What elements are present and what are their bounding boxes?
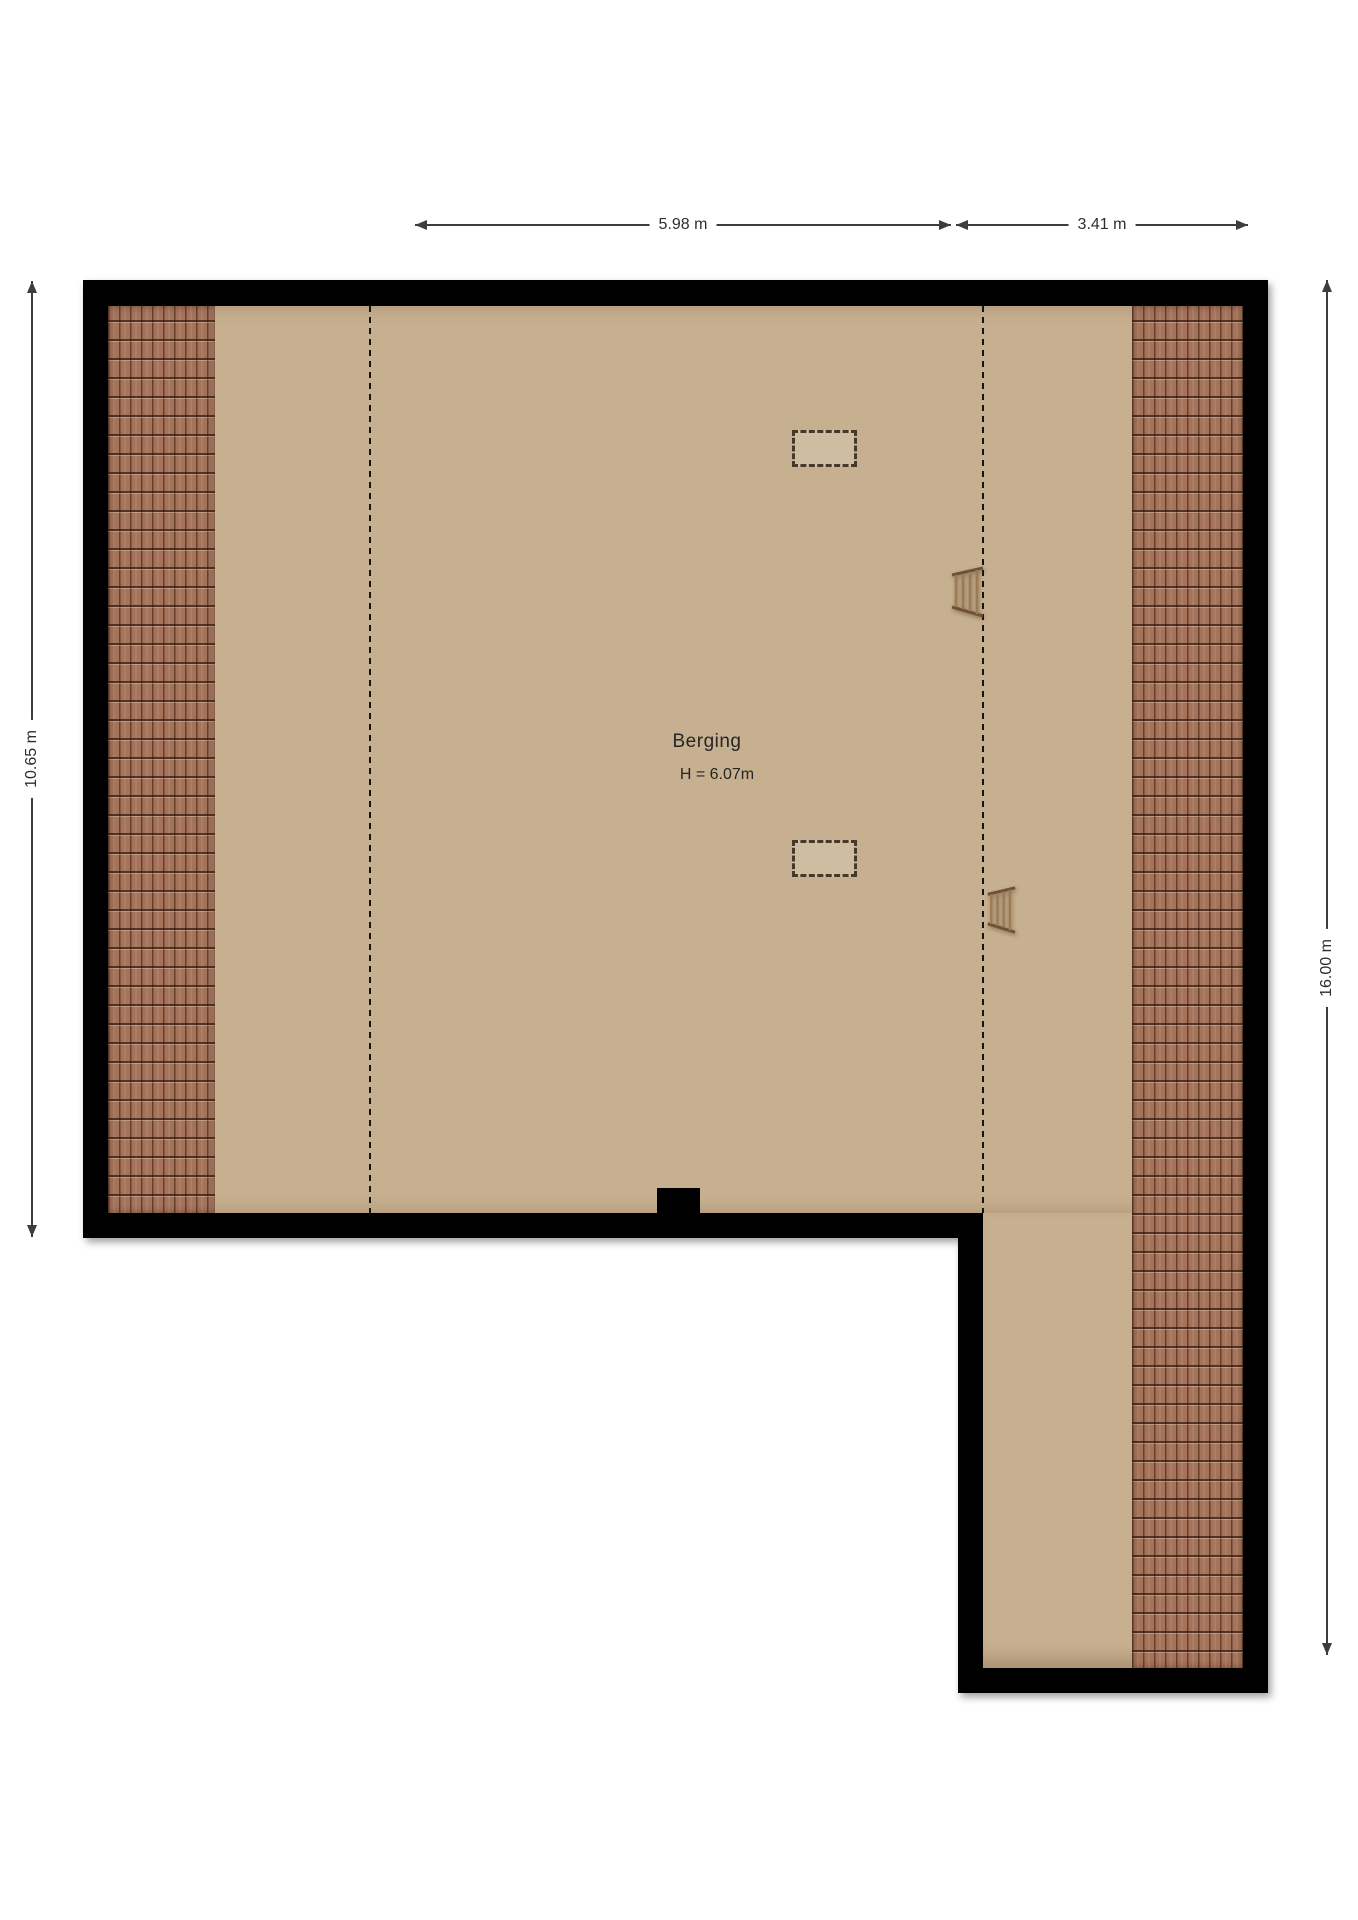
ladder-icon-2 <box>986 886 1016 934</box>
room-name-label: Berging <box>557 731 857 753</box>
floor-plan-page: 5.98 m 3.41 m 10.65 m 16.00 m <box>0 0 1358 1920</box>
door-stub <box>657 1188 700 1238</box>
skylight-dashed-rect-1 <box>792 430 857 467</box>
skylight-dashed-rect-2 <box>792 840 857 877</box>
roof-tiles-left <box>108 306 215 1213</box>
roof-slope-line-right <box>982 306 984 1213</box>
ladder-icon-1 <box>950 566 984 618</box>
roof-tiles-right <box>1132 306 1243 1668</box>
roof-slope-line-left <box>369 306 371 1213</box>
room-height-label: H = 6.07m <box>567 766 867 784</box>
building-outline: Berging H = 6.07m <box>0 0 1358 1920</box>
floor-main-section <box>108 306 1243 1213</box>
